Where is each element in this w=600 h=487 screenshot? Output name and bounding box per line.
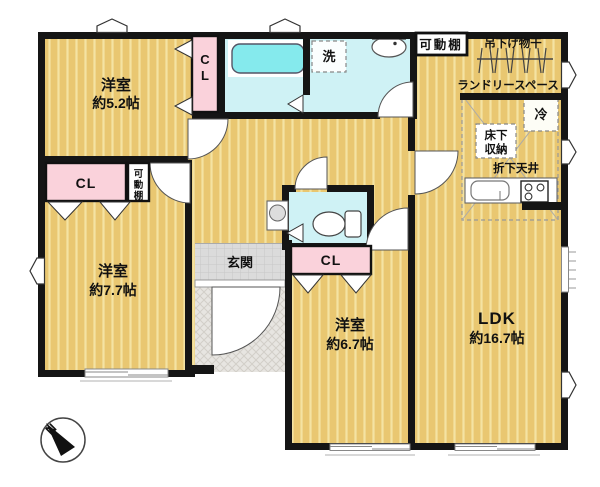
stove-icon — [521, 181, 548, 202]
label-entrance: 玄関 — [227, 255, 253, 270]
label-bedroom77-name: 洋室 — [98, 262, 128, 280]
bath-unit — [228, 40, 308, 77]
toilet-bowl-icon — [313, 212, 345, 236]
window-ldk-bottom — [455, 444, 535, 451]
label-washer: 洗 — [322, 49, 335, 64]
wall-left — [38, 32, 45, 377]
window-room77 — [85, 369, 168, 377]
wall-ldk-left-upper — [408, 112, 415, 151]
label-shelf77-2: 動 — [134, 179, 144, 191]
label-bedroom52-name: 洋室 — [101, 76, 131, 94]
label-closet77: CL — [76, 175, 97, 191]
window-room67 — [330, 444, 410, 451]
label-movable-shelf-top: 可動棚 — [419, 37, 463, 52]
label-underfloor-1: 床下 — [485, 128, 508, 142]
floorplan-drawing: N 洋室 約5.2帖 洋室 約7.7帖 洋室 約6.7帖 LDK 約16.7帖 … — [0, 0, 600, 487]
wall-bath-wash — [303, 39, 310, 95]
wall-entrance-stub — [192, 365, 214, 374]
hand-basin-icon — [270, 205, 286, 221]
wall-toilet-top-right — [327, 185, 374, 192]
label-ldk-name: LDK — [478, 309, 516, 328]
label-bedroom52-size: 約5.2帖 — [92, 95, 139, 111]
vent-window-top-2 — [270, 19, 300, 33]
label-bedroom67-name: 洋室 — [335, 316, 365, 334]
vent-window-laundry — [562, 62, 577, 88]
washbasin-faucet — [393, 42, 396, 45]
bathtub-icon — [232, 44, 304, 73]
label-hanging-rod: 吊下げ物干 — [484, 36, 542, 50]
label-closet52-l: L — [201, 68, 209, 83]
label-laundry-space: ランドリースペース — [457, 79, 559, 92]
label-shelf77-3: 棚 — [134, 190, 144, 202]
wall-laundry-bottom — [460, 93, 563, 100]
toilet-tank-icon — [345, 211, 361, 237]
window-ldk-right — [562, 247, 569, 292]
kitchen-sink-icon — [471, 181, 509, 200]
label-bedroom67-size: 約6.7帖 — [326, 336, 373, 352]
wall-kitchen-stub — [522, 202, 568, 210]
entrance-step — [195, 280, 285, 287]
wall-ldk-left-lower — [408, 195, 415, 450]
label-underfloor-2: 収納 — [485, 142, 508, 156]
label-bedroom77-size: 約7.7帖 — [89, 282, 136, 298]
washbasin-icon — [372, 37, 406, 57]
label-shelf77-1: 可 — [134, 169, 144, 180]
floorplan-page: N 洋室 約5.2帖 洋室 約7.7帖 洋室 約6.7帖 LDK 約16.7帖 … — [0, 0, 600, 487]
label-ldk-size: 約16.7帖 — [469, 330, 524, 346]
compass: N — [41, 418, 85, 462]
vent-window-kitchen — [562, 140, 577, 164]
label-lowered-ceiling: 折下天井 — [493, 161, 539, 175]
label-closet67: CL — [321, 252, 342, 268]
label-closet52-c: C — [200, 52, 210, 67]
vent-window-top-1 — [97, 19, 127, 33]
vent-window-left — [30, 258, 45, 284]
label-refrigerator: 冷 — [534, 107, 547, 122]
vent-window-ldk — [562, 372, 577, 398]
